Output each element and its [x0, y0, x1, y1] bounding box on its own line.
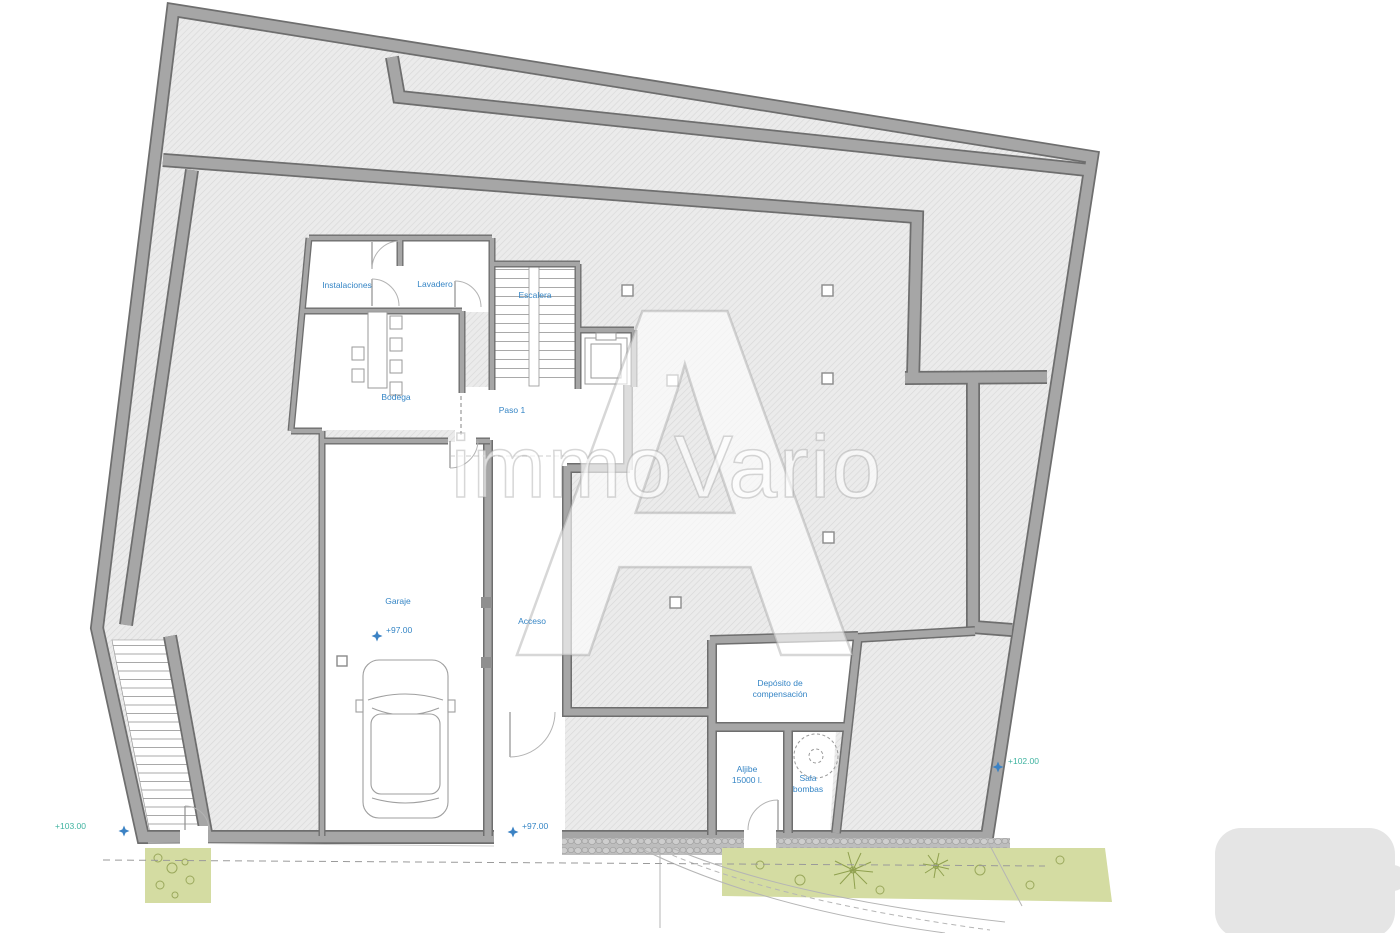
- vegetation-right: [722, 848, 1112, 902]
- floorplan-svg: A immoVario Instalaciones Lavadero Escal…: [0, 0, 1400, 933]
- car-topview: [356, 660, 455, 818]
- corner-widget-blob: [1215, 828, 1400, 933]
- level-garaje: +97.00: [386, 625, 413, 635]
- room-label-deposito-line1: Depósito de: [757, 678, 803, 688]
- room-label-aljibe-line1: Aljibe: [737, 764, 758, 774]
- room-label-garaje: Garaje: [385, 596, 411, 606]
- vegetation-left: [145, 848, 211, 903]
- brand-watermark-text: immoVario: [451, 417, 883, 516]
- room-label-paso1: Paso 1: [499, 405, 526, 415]
- room-label-instalaciones: Instalaciones: [322, 280, 372, 290]
- room-label-bodega: Bodega: [381, 392, 411, 402]
- watermark: A immoVario: [451, 202, 883, 761]
- floorplan-page: A immoVario Instalaciones Lavadero Escal…: [0, 0, 1400, 933]
- room-label-acceso: Acceso: [518, 616, 546, 626]
- room-label-aljibe-line2: 15000 l.: [732, 775, 762, 785]
- room-label-deposito-line2: compensación: [753, 689, 808, 699]
- room-label-sala-line1: Sala: [799, 773, 816, 783]
- level-este: +102.00: [1008, 756, 1039, 766]
- floor-drain: [337, 656, 347, 666]
- room-label-sala-line2: bombas: [793, 784, 823, 794]
- level-oeste: +103.00: [55, 821, 86, 831]
- level-marker-oeste-icon: [119, 826, 130, 837]
- room-label-escalera: Escalera: [518, 290, 551, 300]
- room-label-lavadero: Lavadero: [417, 279, 453, 289]
- level-entrada: +97.00: [522, 821, 549, 831]
